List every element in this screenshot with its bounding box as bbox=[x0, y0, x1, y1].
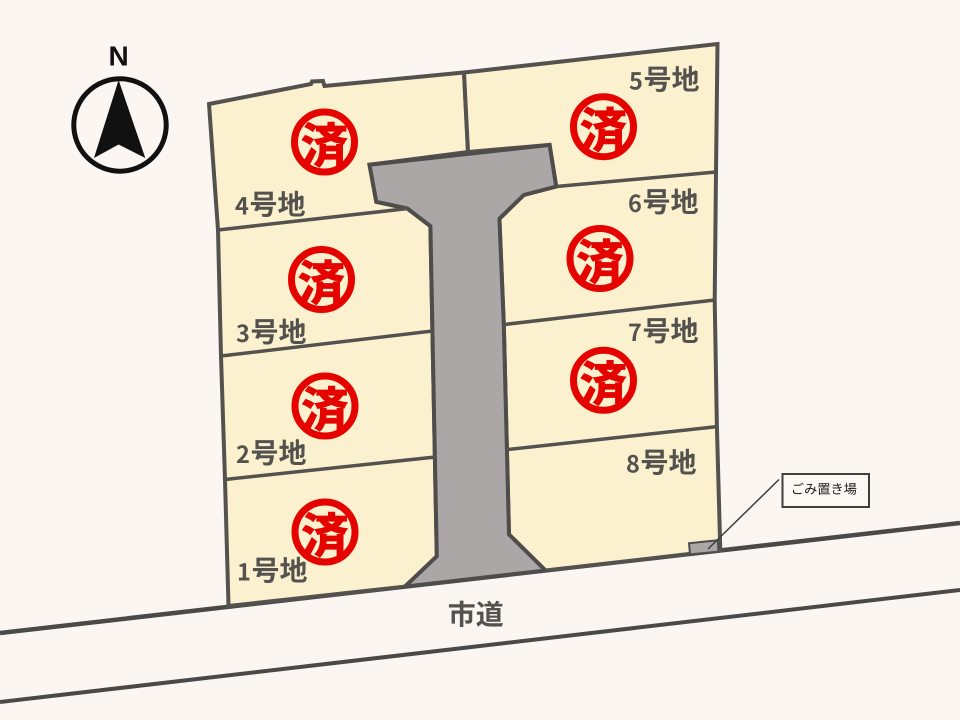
svg-text:N: N bbox=[108, 41, 128, 72]
